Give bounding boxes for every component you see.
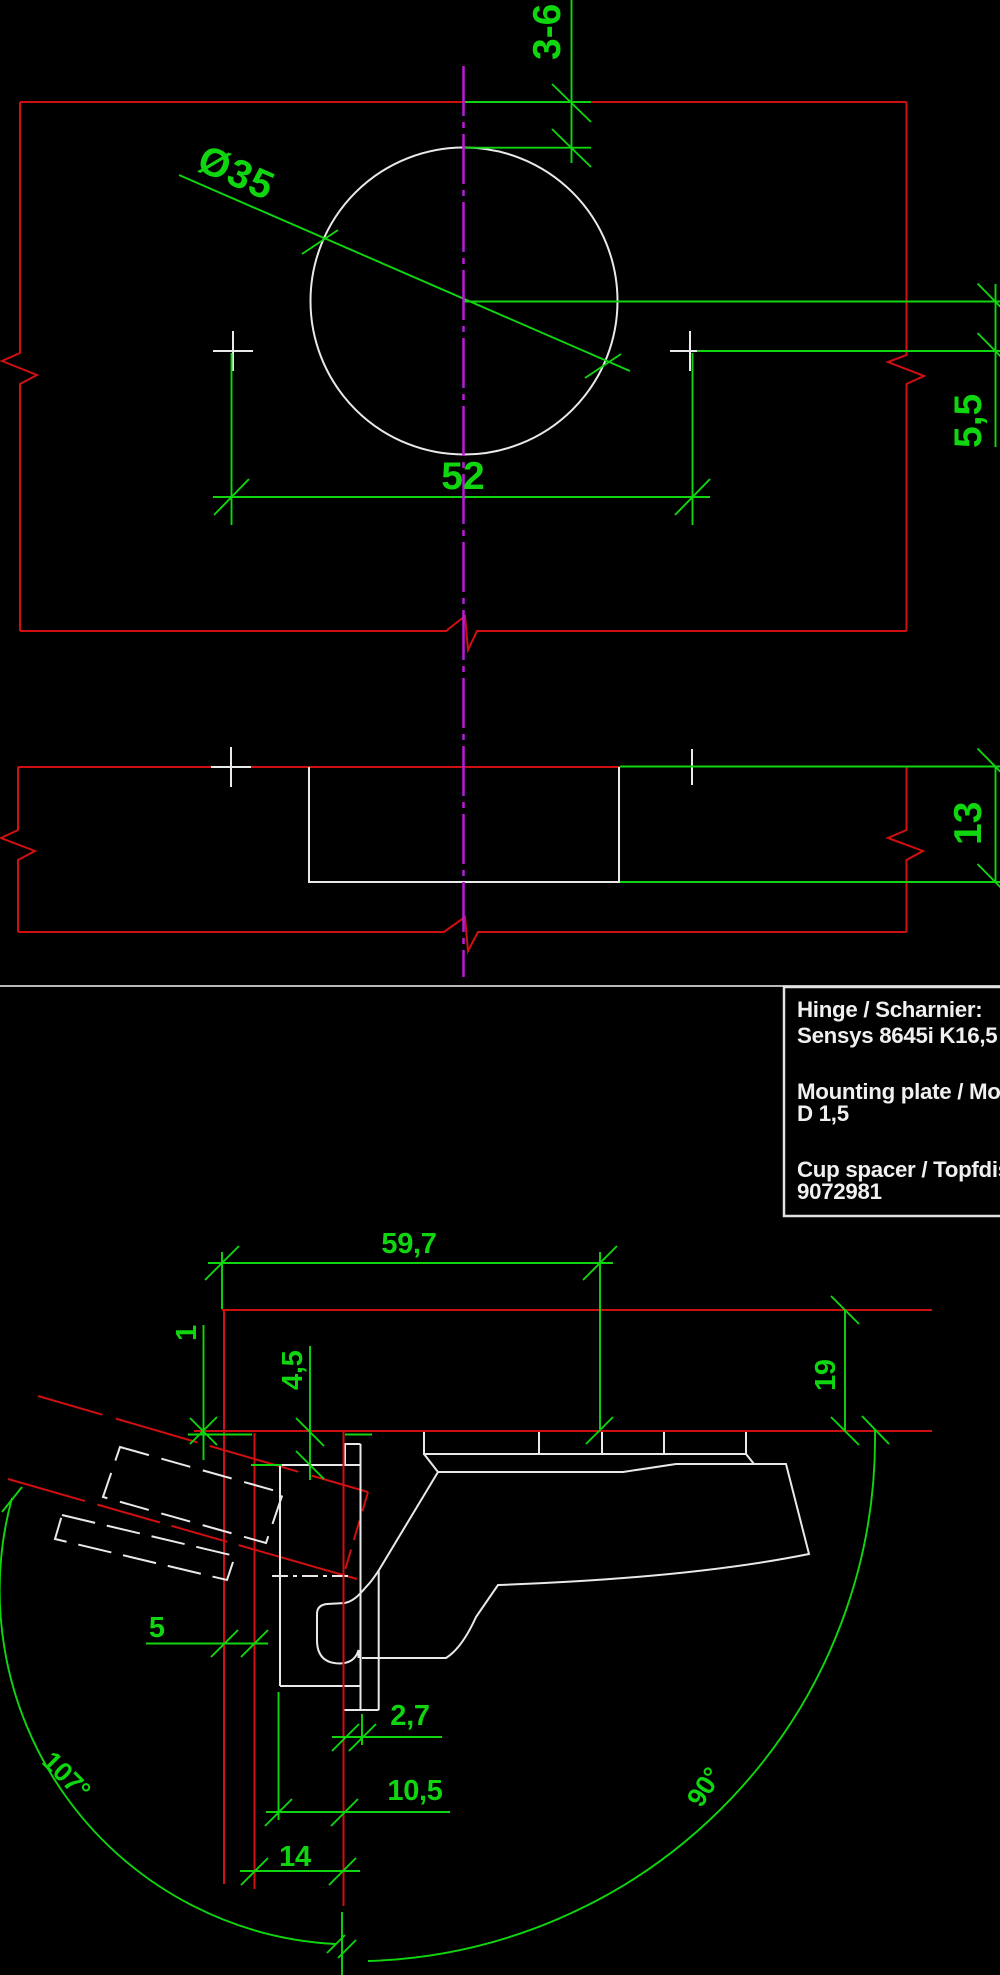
svg-text:2,7: 2,7 bbox=[390, 1700, 429, 1732]
svg-text:D 1,5: D 1,5 bbox=[797, 1101, 849, 1126]
svg-text:9072981: 9072981 bbox=[797, 1179, 882, 1204]
svg-text:5,5: 5,5 bbox=[947, 394, 990, 448]
svg-text:52: 52 bbox=[441, 455, 484, 498]
svg-text:4,5: 4,5 bbox=[277, 1350, 309, 1390]
svg-text:19: 19 bbox=[810, 1359, 842, 1391]
svg-text:59,7: 59,7 bbox=[381, 1228, 436, 1260]
svg-text:Hinge / Scharnier:: Hinge / Scharnier: bbox=[797, 997, 982, 1022]
svg-text:14: 14 bbox=[279, 1841, 311, 1873]
svg-text:Sensys 8645i K16,5: Sensys 8645i K16,5 bbox=[797, 1023, 997, 1048]
svg-text:3-6: 3-6 bbox=[526, 4, 569, 60]
svg-text:5: 5 bbox=[149, 1612, 165, 1644]
svg-text:10,5: 10,5 bbox=[387, 1775, 442, 1807]
svg-text:13: 13 bbox=[947, 802, 990, 845]
svg-text:1: 1 bbox=[171, 1325, 203, 1341]
